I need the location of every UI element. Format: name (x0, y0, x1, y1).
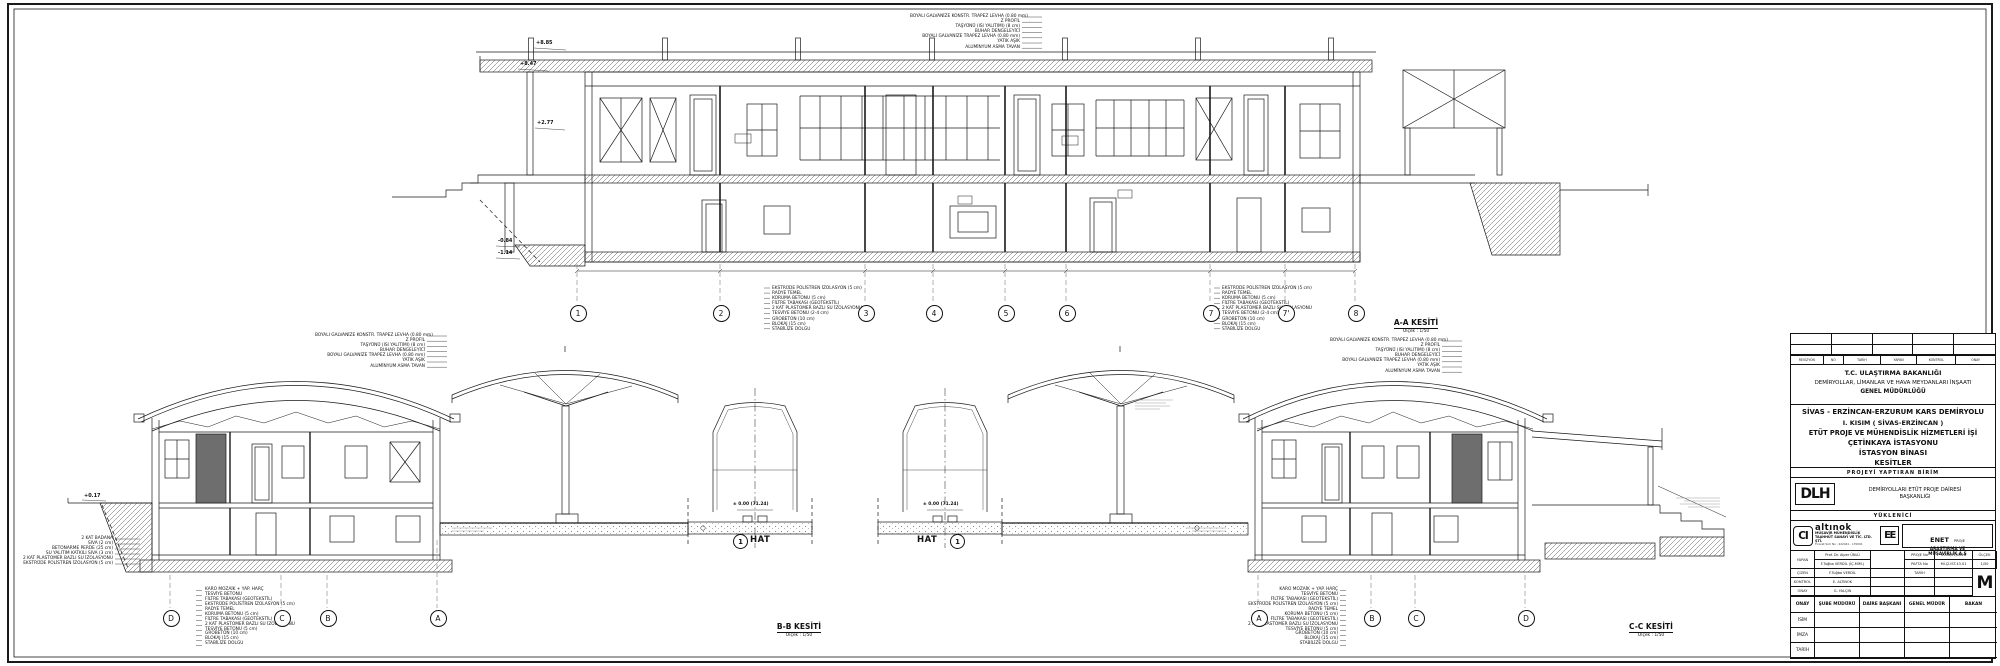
grid-bubble-br-c: C (1408, 610, 1425, 627)
roof-annotation-stack-cc: BOYALI GALVANİZE KONSTR. TRAPEZ LEVHA (0… (1330, 338, 1440, 374)
annotation-leaders-cc (1340, 341, 1462, 646)
yapan-name-1: Prof. Dr. Alper ÜNLÜ (1815, 551, 1871, 560)
project-line: KESİTLER (1791, 458, 1995, 468)
grid-bubble-top-2: 2 (713, 305, 730, 322)
track-label-left: HAT (750, 535, 770, 545)
approval-row-label: TARİH (1791, 643, 1815, 658)
enet-name: ENET (1930, 536, 1949, 544)
grid-bubble-top-5: 5 (998, 305, 1015, 322)
grid-bubble-top-7: 7 (1203, 305, 1220, 322)
cizen-name: F.Tuğba VERDİL (1815, 569, 1871, 578)
track-number-bubble-left: 1 (733, 534, 748, 549)
grid-bubble-bl-c: C (274, 610, 291, 627)
grid-bubble-bl-a: A (430, 610, 447, 627)
revision-col: TARİH (1844, 356, 1881, 364)
elevation-label: -1.14 (498, 250, 512, 256)
m-mark: M (1973, 569, 1997, 596)
revision-col: KONTROL (1917, 356, 1956, 364)
left-ground (392, 175, 585, 266)
grid-bubble-bl-d: D (163, 610, 180, 627)
contractor-header: YÜKLENİCİ (1791, 511, 1995, 521)
drawing-sheet: BOYALI GALVANİZE KONSTR. TRAPEZ LEVHA (0… (0, 0, 2000, 666)
elevator-shaft (196, 434, 226, 503)
columns (720, 86, 1285, 252)
project-line: I. KISIM ( SİVAS-ERZİNCAN ) (1791, 418, 1995, 428)
enet-box: ENET PROJE ARAŞTIRMA VE MÜŞAVİRLİK A.Ş (1902, 524, 1993, 548)
drawing-linework (0, 0, 2000, 666)
floor-annotation-stack-right: KARO MOZAİK + YAP. HARÇTESVİYE BETONUFİL… (1228, 588, 1338, 647)
project-line: İSTASYON BİNASI (1791, 448, 1995, 458)
upper-floor-openings (600, 95, 1340, 175)
section-scale: Ölçek : 1/50 (1624, 633, 1678, 638)
section-scale: Ölçek : 1/50 (1386, 329, 1446, 334)
annotation-line: STABİLİZE DOLGU (205, 642, 295, 647)
project-block: SİVAS - ERZİNCAN-ERZURUM KARS DEMİRYOLU … (1791, 405, 1995, 468)
section-aa-drawing (392, 17, 1648, 329)
ministry-block: T.C. ULAŞTIRMA BAKANLIĞI DEMİRYOLLAR, Lİ… (1791, 365, 1995, 405)
grid-bubble-top-8: 8 (1348, 305, 1365, 322)
enet-logo: EE (1880, 526, 1899, 545)
pafta-no-label: PAFTA No (1905, 560, 1935, 569)
project-line: ÇETİNKAYA İSTASYONU (1791, 438, 1995, 448)
kontrol-label: KONTROL (1791, 578, 1815, 587)
approval-table: ONAY ŞUBE MÜDÜRÜ DAİRE BAŞKANI GENEL MÜD… (1791, 597, 1995, 658)
rail-elevation-label: ± 0.00 (71.24) (733, 502, 768, 507)
dimension-row (575, 269, 1357, 273)
yapan-name-2: F.Tuğba VERDİL (İÇ.MİM.) (1815, 560, 1871, 569)
grid-bubble-top-7p: 7' (1278, 305, 1295, 322)
annotation-line: ALUMİNYUM ASMA TAVAN (910, 45, 1020, 50)
annotation-line: EKSTRÜDE POLİSTREN İZOLASYON (5 cm) (23, 561, 113, 566)
yapan-label: YAPAN (1791, 551, 1815, 569)
dlh-logo: DLH (1795, 483, 1835, 505)
roof-annotation-stack-bb: BOYALI GALVANİZE KONSTR. TRAPEZ LEVHA (0… (315, 333, 425, 369)
ministry-line: GENEL MÜDÜRLÜĞÜ (1791, 388, 1995, 397)
elevation-label: +8.47 (520, 61, 537, 67)
onay-name: G. YALÇIN (1815, 587, 1871, 596)
approval-col: BAKAN (1950, 597, 1997, 613)
revision-table-header: REVİZYON NO TARİH YAPAN KONTROL ONAY (1791, 356, 1995, 365)
signature-table: YAPAN Prof. Dr. Alper ÜNLÜ F.Tuğba VERDİ… (1791, 551, 1995, 597)
elevation-label: +8.85 (536, 40, 553, 46)
grid-bubble-bl-b: B (320, 610, 337, 627)
platform-canopy-middle (878, 346, 1248, 548)
cizen-label: ÇİZEN (1791, 569, 1815, 578)
grid-bubble-top-1: 1 (570, 305, 587, 322)
roof-annotation-stack-aa: BOYALI GALVANİZE KONSTR. TRAPEZ LEVHA (0… (910, 14, 1020, 50)
approval-col: DAİRE BAŞKANI (1860, 597, 1905, 613)
altinok-logo: CI (1793, 526, 1813, 546)
annotation-line: STABİLİZE DOLGU (1228, 642, 1338, 647)
elevation-label: +2.77 (537, 120, 554, 126)
right-pergola (1360, 70, 1648, 255)
revision-col: REVİZYON (1791, 356, 1824, 364)
project-line: SİVAS - ERZİNCAN-ERZURUM KARS DEMİRYOLU (1791, 407, 1995, 418)
approval-col: GENEL MÜDÜR (1905, 597, 1950, 613)
altinok-line: Ticaret Sicil No : 222441 - 170001 (1815, 543, 1877, 546)
commissioning-line: BAŞKANLIĞI (1835, 494, 1995, 502)
approval-col: ŞUBE MÜDÜRÜ (1815, 597, 1860, 613)
ministry-line: DEMİRYOLLAR, LİMANLAR VE HAVA MEYDANLARI… (1791, 379, 1995, 388)
foundation-annotation-stack-1: EKSTRÜDE POLİSTREN İZOLASYON (5 cm)RADYE… (772, 286, 862, 332)
section-title: C-C KESİTİ (1629, 622, 1673, 633)
foundation-annotation-stack-2: EKSTRÜDE POLİSTREN İZOLASYON (5 cm)RADYE… (1222, 286, 1312, 332)
section-label-cc: C-C KESİTİ Ölçek : 1/50 (1624, 614, 1678, 638)
section-label-aa: A-A KESİTİ Ölçek : 1/50 (1386, 310, 1446, 334)
project-line: ETÜT PROJE VE MÜHENDİSLİK HİZMETLERİ İŞİ (1791, 428, 1995, 438)
olcek-value: 1/50 (1973, 560, 1997, 569)
onay-label: ONAY (1791, 587, 1815, 596)
section-title: A-A KESİTİ (1394, 318, 1438, 329)
micro-notes (1676, 498, 1720, 507)
olcek-label: ÖLÇEK (1973, 551, 1997, 560)
section-title: B-B KESİTİ (777, 622, 821, 633)
wall-annotation-stack: 2 KAT BADANASIVA (2 cm)BETONARME PERDE (… (23, 536, 113, 567)
commissioning-line: DEMİRYOLLARI ETÜT PROJE DAİRESİ (1835, 487, 1995, 495)
revision-col: NO (1824, 356, 1844, 364)
kontrol-name: E. ALTINOK (1815, 578, 1871, 587)
section-bb-drawing (68, 336, 812, 646)
grid-bubble-top-6: 6 (1059, 305, 1076, 322)
contractor-row: CI altınok MÜŞAVİR MÜHENDİSLİK TAAHHÜT S… (1791, 521, 1995, 551)
basement-openings (702, 198, 1330, 252)
annotation-line: STABİLİZE DOLGU (772, 327, 862, 332)
revision-col: ONAY (1956, 356, 1995, 364)
micro-notes (1135, 400, 1226, 531)
grid-bubble-br-a: A (1251, 610, 1268, 627)
enet-suffix: PROJE (1954, 539, 1965, 543)
proje-no-label: PROJE No (1905, 551, 1935, 560)
approval-onay: ONAY (1791, 597, 1815, 613)
annotation-line: ALUMİNYUM ASMA TAVAN (1330, 369, 1440, 374)
elevator-shaft (1452, 434, 1482, 503)
track-label-right: HAT (917, 535, 937, 545)
annotation-line: ALUMİNYUM ASMA TAVAN (315, 364, 425, 369)
commissioning-header: PROJEYİ YAPTIRAN BİRİM (1791, 468, 1995, 478)
rail-elevation-label: ± 0.00 (71.24) (923, 502, 958, 507)
approval-row-label: İMZA (1791, 628, 1815, 643)
commissioning-row: DLH DEMİRYOLLARI ETÜT PROJE DAİRESİ BAŞK… (1791, 478, 1995, 511)
title-block: REVİZYON NO TARİH YAPAN KONTROL ONAY T.C… (1790, 333, 1996, 659)
tarih-label: TARİH (1905, 569, 1935, 578)
grid-bubble-br-d: D (1518, 610, 1535, 627)
annotation-line: STABİLİZE DOLGU (1222, 327, 1312, 332)
track-number-bubble-right: 1 (950, 534, 965, 549)
section-scale: Ölçek : 1/50 (772, 633, 826, 638)
grid-bubble-br-b: B (1364, 610, 1381, 627)
ministry-line: T.C. ULAŞTIRMA BAKANLIĞI (1791, 369, 1995, 379)
approval-row-label: İSİM (1791, 613, 1815, 628)
pafta-no-value: Mİ.Çİ.İST.43.01 (1935, 560, 1973, 569)
revision-col: YAPAN (1881, 356, 1918, 364)
grid-bubble-top-4: 4 (926, 305, 943, 322)
revision-table-empty (1791, 334, 1995, 356)
grid-bubble-top-3: 3 (858, 305, 875, 322)
section-label-bb: B-B KESİTİ Ölçek : 1/50 (772, 614, 826, 638)
elevation-label: +0.17 (84, 493, 101, 499)
proje-no-value: 2006/21/0020 (1935, 551, 1973, 560)
elevation-label: -0.84 (498, 238, 512, 244)
